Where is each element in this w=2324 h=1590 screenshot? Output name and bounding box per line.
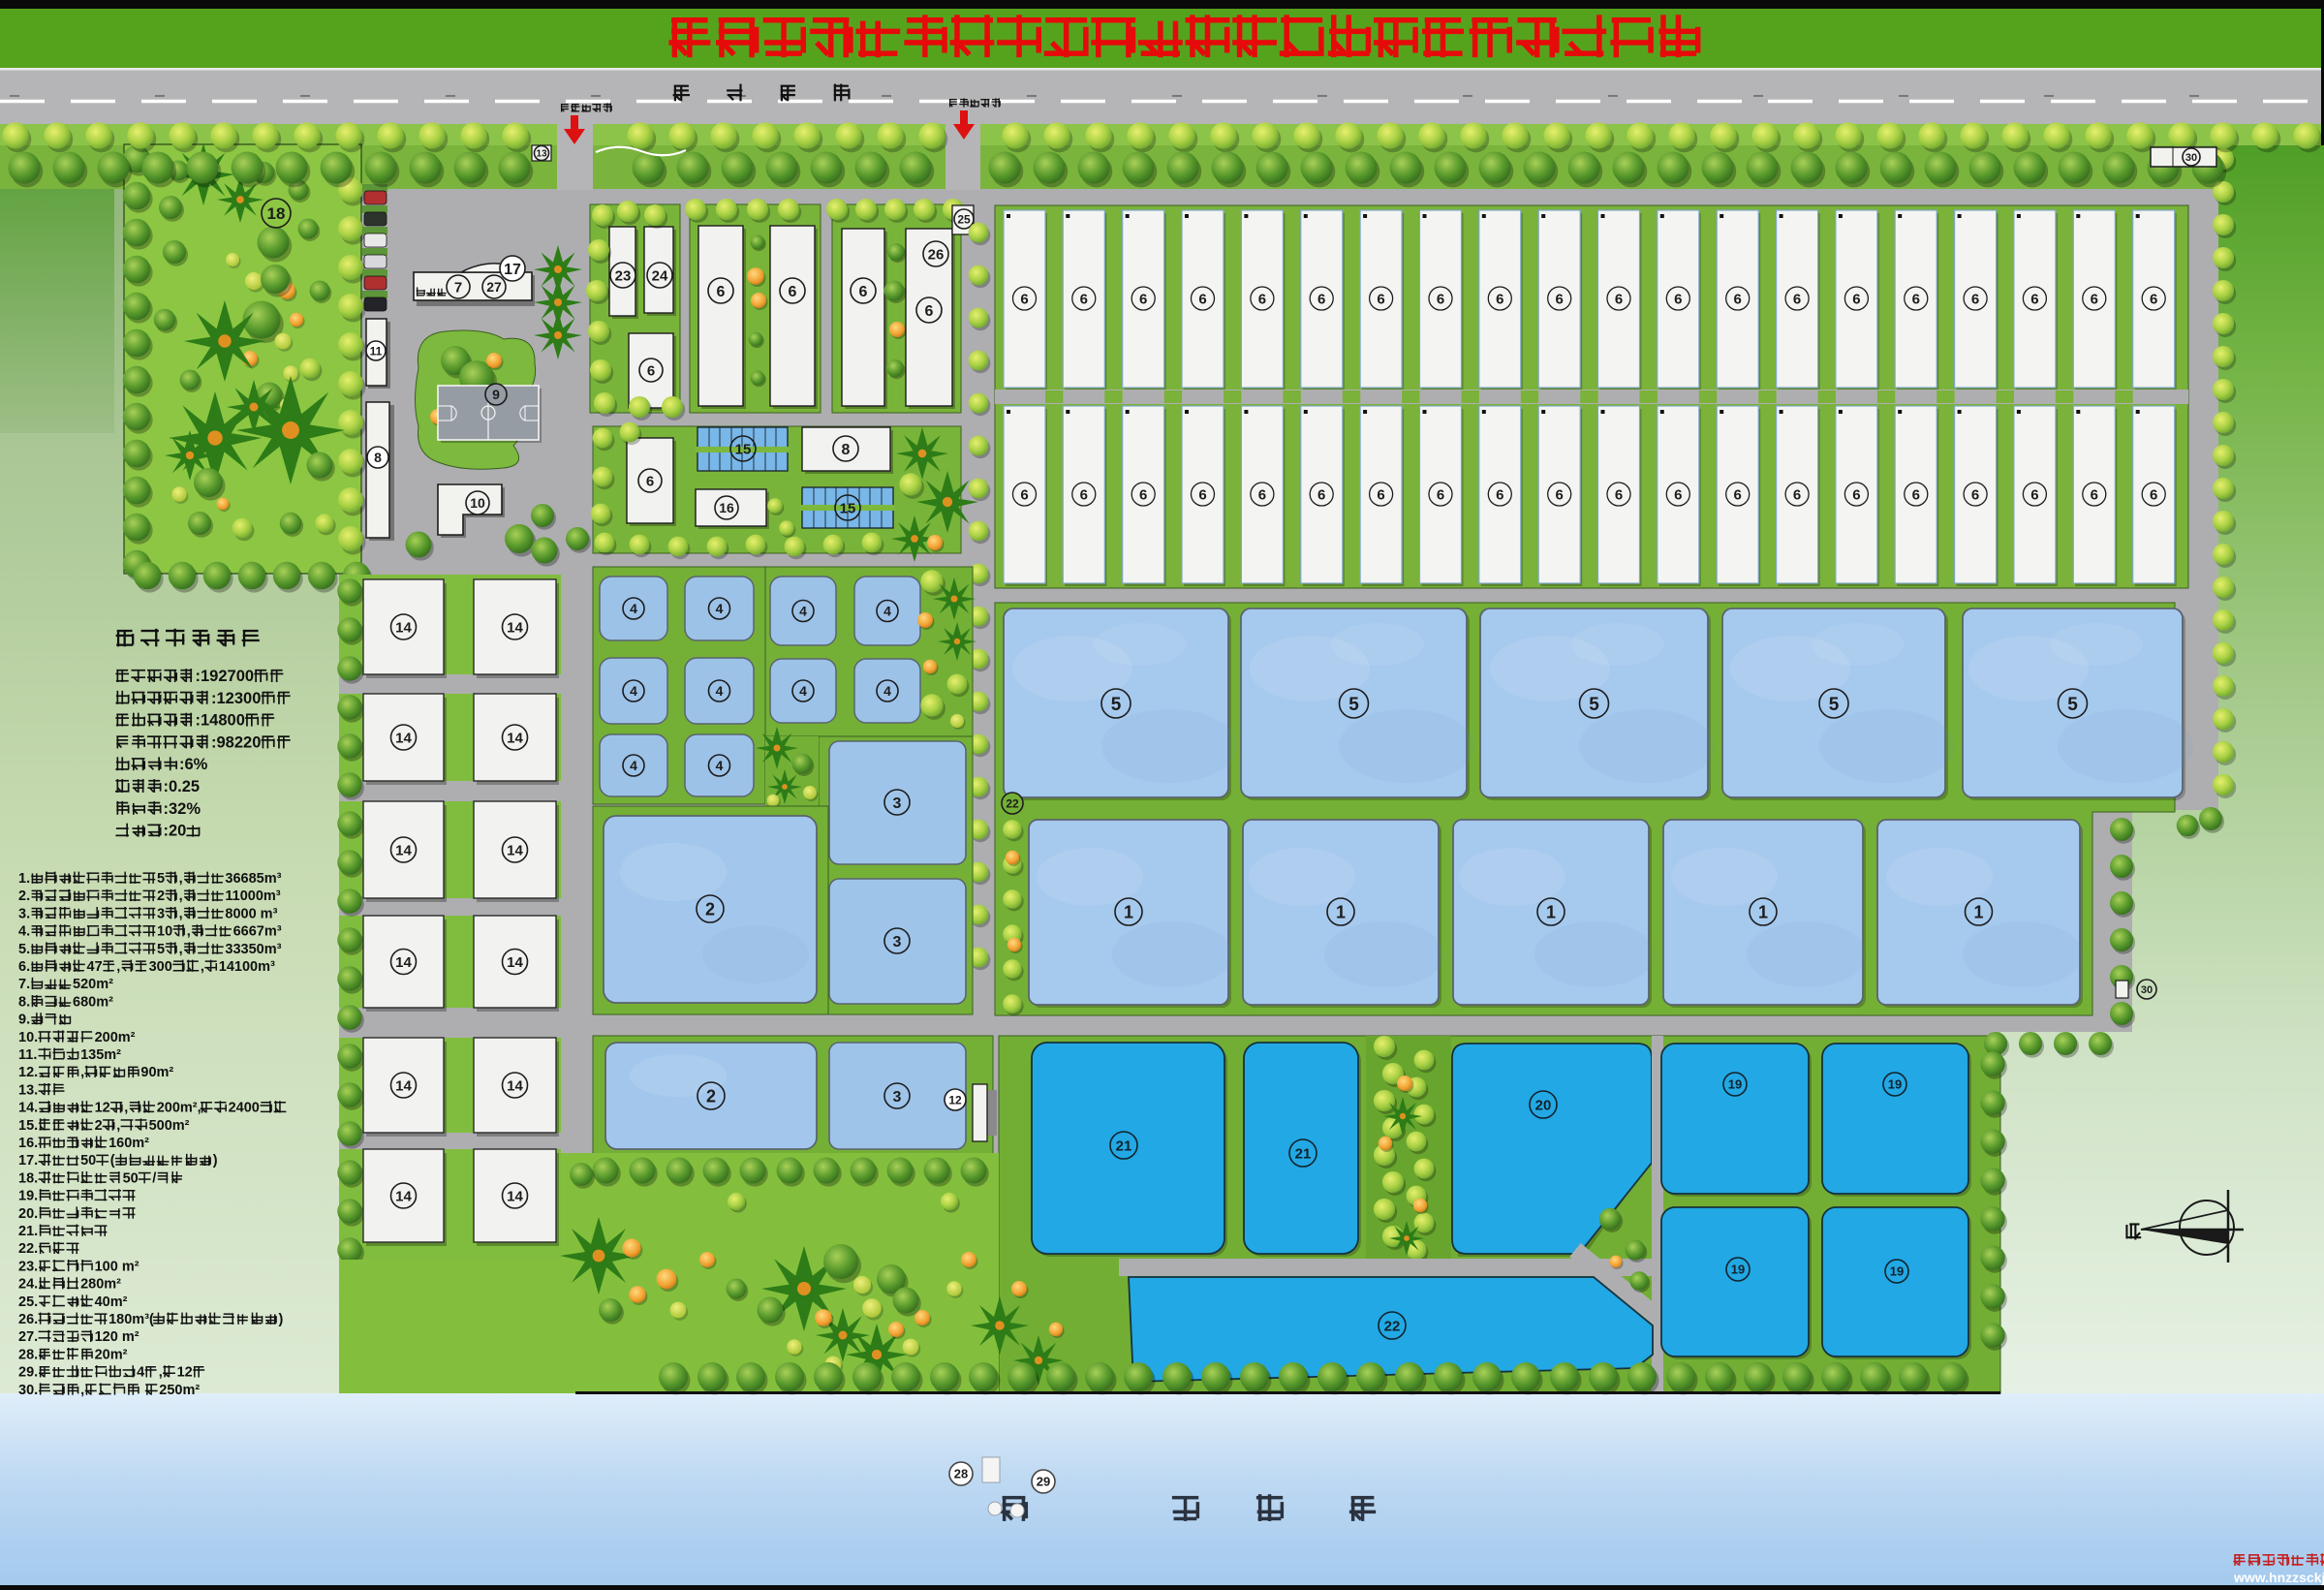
svg-text:18.: 18. [18,1170,38,1186]
svg-text:14: 14 [507,730,523,746]
svg-text:,: , [179,889,183,904]
svg-text:6: 6 [1734,486,1742,503]
svg-text:,: , [116,1118,120,1134]
svg-text:,: , [179,871,183,887]
svg-text:6: 6 [1437,486,1444,503]
svg-text:17.: 17. [18,1153,38,1169]
svg-text:100 m²: 100 m² [95,1259,139,1274]
svg-text:300: 300 [149,959,172,975]
svg-text:6: 6 [1793,291,1801,307]
svg-text:5: 5 [2067,695,2078,715]
svg-text:2: 2 [706,1087,716,1107]
svg-text:16: 16 [719,500,734,515]
svg-text:4: 4 [883,604,891,619]
svg-text:,: , [80,1383,84,1398]
svg-text:14: 14 [507,1077,523,1094]
svg-text:26: 26 [928,246,945,263]
svg-text:5: 5 [1829,695,1840,715]
svg-text:6: 6 [1377,486,1384,503]
svg-text:8000 m³: 8000 m³ [225,906,277,921]
svg-text:14100m³: 14100m³ [219,959,275,975]
svg-text:6: 6 [1912,291,1920,307]
svg-text:20: 20 [1535,1097,1552,1113]
svg-text:29.: 29. [18,1365,38,1381]
svg-text:(: ( [110,1153,115,1169]
svg-text:2: 2 [95,1118,103,1134]
svg-text:6: 6 [1317,291,1325,307]
svg-text:6: 6 [1437,291,1444,307]
svg-text:9: 9 [492,387,500,402]
svg-text:6: 6 [2030,486,2038,503]
svg-text:6: 6 [2150,291,2157,307]
svg-text:90m²: 90m² [140,1065,173,1080]
svg-text:5: 5 [157,942,165,957]
svg-text:33350m³: 33350m³ [225,942,281,957]
svg-text:,: , [159,1365,163,1381]
svg-text:5: 5 [1348,695,1359,715]
svg-text:4: 4 [630,683,637,699]
svg-text::192700: :192700 [196,668,255,685]
svg-text:5.: 5. [18,942,30,957]
svg-text:3: 3 [893,1089,902,1106]
svg-text:2: 2 [157,889,165,904]
svg-text:250m²: 250m² [159,1383,200,1398]
svg-text:6: 6 [2150,486,2157,503]
svg-text:12: 12 [948,1093,962,1107]
svg-text:11.: 11. [18,1047,37,1063]
svg-text:6: 6 [1139,291,1147,307]
svg-text:6.: 6. [18,959,30,975]
svg-text:4: 4 [799,604,807,619]
svg-text:14: 14 [395,730,412,746]
svg-text:6: 6 [2091,291,2098,307]
svg-text:6: 6 [1912,486,1920,503]
svg-text::32%: :32% [164,800,201,818]
svg-text:6: 6 [1020,291,1028,307]
svg-text:5: 5 [1111,695,1122,715]
svg-text:6: 6 [1852,291,1860,307]
svg-text::14800: :14800 [196,712,245,730]
svg-text:6: 6 [1556,486,1564,503]
svg-text:6667m³: 6667m³ [233,924,282,940]
svg-text:22: 22 [1384,1318,1401,1334]
svg-text:6: 6 [1556,291,1564,307]
svg-text:4: 4 [630,601,637,616]
svg-text:6: 6 [1734,291,1742,307]
svg-text:14: 14 [507,954,523,971]
svg-text:6: 6 [1198,291,1206,307]
svg-text:2400: 2400 [229,1101,260,1116]
svg-text:11000m³: 11000m³ [225,889,280,904]
svg-text:14: 14 [507,1188,523,1204]
svg-text::20: :20 [164,823,187,840]
svg-text:www.hnzzsckj.com: www.hnzzsckj.com [2233,1570,2324,1585]
svg-text:21: 21 [1295,1145,1312,1162]
svg-text:12: 12 [95,1101,110,1116]
svg-text:20m²: 20m² [95,1347,128,1362]
svg-text:6: 6 [1496,291,1503,307]
svg-text:15: 15 [735,441,752,457]
svg-text:20.: 20. [18,1206,38,1222]
svg-text:50: 50 [123,1170,139,1186]
svg-text:/: / [152,1170,156,1186]
svg-text:6: 6 [2030,291,2038,307]
svg-text:15.: 15. [18,1118,38,1134]
svg-text:7.: 7. [18,977,30,992]
svg-text:19: 19 [1890,1264,1904,1279]
svg-text:30: 30 [2185,152,2197,164]
svg-text:6: 6 [1198,486,1206,503]
svg-text:8.: 8. [18,994,30,1010]
svg-text:25: 25 [957,212,971,226]
svg-text:6: 6 [1615,291,1623,307]
svg-text:27.: 27. [18,1329,38,1345]
svg-text:,: , [179,942,183,957]
svg-text:14: 14 [395,619,412,636]
svg-text:14: 14 [507,842,523,858]
svg-text:19.: 19. [18,1189,38,1204]
svg-text:18: 18 [267,204,286,223]
svg-text::12300: :12300 [211,690,261,707]
svg-text:6: 6 [1080,486,1088,503]
svg-text:14: 14 [395,954,412,971]
svg-text:,: , [116,959,120,975]
svg-text:6: 6 [859,284,868,300]
svg-text:120 m²: 120 m² [95,1329,139,1345]
svg-text:19: 19 [1731,1263,1745,1277]
svg-text:21: 21 [1116,1138,1132,1154]
svg-text:47: 47 [87,959,103,975]
svg-text:19: 19 [1728,1077,1742,1092]
svg-text:160m²: 160m² [108,1136,149,1151]
svg-text:12.: 12. [18,1065,38,1080]
svg-text:6: 6 [1258,486,1266,503]
svg-text:10: 10 [157,924,172,940]
svg-text:4: 4 [137,1365,144,1381]
svg-text:6: 6 [1971,291,1979,307]
svg-text:3: 3 [893,934,902,951]
svg-text:1: 1 [1758,903,1768,922]
svg-text:7: 7 [454,279,462,296]
svg-text:6: 6 [717,284,726,300]
svg-text:4: 4 [716,758,724,773]
svg-text:40m²: 40m² [95,1294,128,1310]
svg-text:2.: 2. [18,889,30,904]
svg-text:6: 6 [1615,486,1623,503]
svg-text:14: 14 [395,1188,412,1204]
svg-text::6%: :6% [179,756,208,773]
svg-text:4.: 4. [18,924,30,940]
svg-text:6: 6 [2091,486,2098,503]
svg-text:6: 6 [1317,486,1325,503]
svg-text:5: 5 [157,871,165,887]
svg-text:6: 6 [1080,291,1088,307]
svg-text:24.: 24. [18,1277,38,1293]
svg-text:28.: 28. [18,1347,38,1362]
svg-text:6: 6 [1971,486,1979,503]
svg-text:200m²: 200m² [95,1030,136,1045]
svg-text:4: 4 [883,683,891,699]
svg-text:14.: 14. [18,1101,38,1116]
svg-text:1: 1 [1336,903,1346,922]
svg-text:500m²: 500m² [149,1118,190,1134]
svg-text:3: 3 [157,906,165,921]
svg-text:3.: 3. [18,906,30,921]
svg-text:,: , [201,959,204,975]
svg-text:3: 3 [893,795,902,812]
svg-text:13.: 13. [18,1082,38,1098]
svg-text:19: 19 [1888,1077,1902,1092]
svg-text:4: 4 [716,683,724,699]
svg-text:30: 30 [2141,984,2153,996]
svg-text:2: 2 [705,900,715,920]
svg-text::98220: :98220 [211,733,261,751]
svg-text:): ) [279,1312,284,1327]
svg-text:8: 8 [374,450,382,465]
svg-text:21.: 21. [18,1224,38,1239]
svg-text:16.: 16. [18,1136,38,1151]
svg-text:13: 13 [536,149,547,160]
svg-text:6: 6 [1674,486,1682,503]
svg-text:680m²: 680m² [73,994,113,1010]
svg-text:280m²: 280m² [80,1277,121,1293]
svg-text:1.: 1. [18,871,30,887]
svg-text:22.: 22. [18,1241,38,1257]
svg-text:24: 24 [652,267,668,284]
svg-text:1: 1 [1973,903,1983,922]
svg-text:30.: 30. [18,1383,38,1398]
svg-text:50: 50 [80,1153,96,1169]
svg-text:6: 6 [1258,291,1266,307]
svg-text:200m²,: 200m², [157,1101,201,1116]
svg-text:520m²: 520m² [73,977,113,992]
svg-text:6: 6 [925,303,934,320]
svg-text:6: 6 [1793,486,1801,503]
svg-text:): ) [213,1153,218,1169]
svg-text:6: 6 [1852,486,1860,503]
svg-text:,: , [187,924,191,940]
svg-text:17: 17 [504,262,521,278]
svg-text:6: 6 [1674,291,1682,307]
svg-text:5: 5 [1589,695,1599,715]
svg-text:6: 6 [1377,291,1384,307]
svg-text:27: 27 [486,279,502,295]
svg-text:14: 14 [507,619,523,636]
svg-text:23.: 23. [18,1259,38,1274]
svg-text:26.: 26. [18,1312,38,1327]
svg-text:28: 28 [954,1467,968,1481]
svg-text:11: 11 [370,344,383,358]
svg-text:9.: 9. [18,1013,30,1028]
svg-text:23: 23 [615,267,632,284]
svg-text:6: 6 [1496,486,1503,503]
svg-text:10.: 10. [18,1030,38,1045]
svg-text:14: 14 [395,842,412,858]
svg-text:,: , [124,1101,128,1116]
svg-text:6: 6 [789,284,797,300]
svg-text:4: 4 [716,601,724,616]
svg-text:12: 12 [177,1365,193,1381]
svg-text:10: 10 [470,495,485,511]
svg-text:25.: 25. [18,1294,38,1310]
svg-text:1: 1 [1546,903,1556,922]
svg-text:180m³(: 180m³( [108,1312,154,1327]
svg-text:22: 22 [1006,796,1019,810]
svg-text:15: 15 [840,500,856,516]
svg-text:29: 29 [1037,1475,1050,1489]
svg-text:36685m³: 36685m³ [225,871,281,887]
svg-text:,: , [179,906,183,921]
svg-text:6: 6 [1139,486,1147,503]
svg-text:6: 6 [646,473,654,489]
svg-text:135m²: 135m² [80,1047,121,1063]
svg-text:14: 14 [395,1077,412,1094]
svg-text:,: , [80,1065,84,1080]
svg-text:8: 8 [842,442,851,458]
svg-text::0.25: :0.25 [164,778,201,795]
svg-text:6: 6 [1020,486,1028,503]
svg-text:6: 6 [647,362,655,379]
svg-text:4: 4 [799,683,807,699]
svg-text:1: 1 [1124,903,1133,922]
svg-text:4: 4 [630,758,637,773]
